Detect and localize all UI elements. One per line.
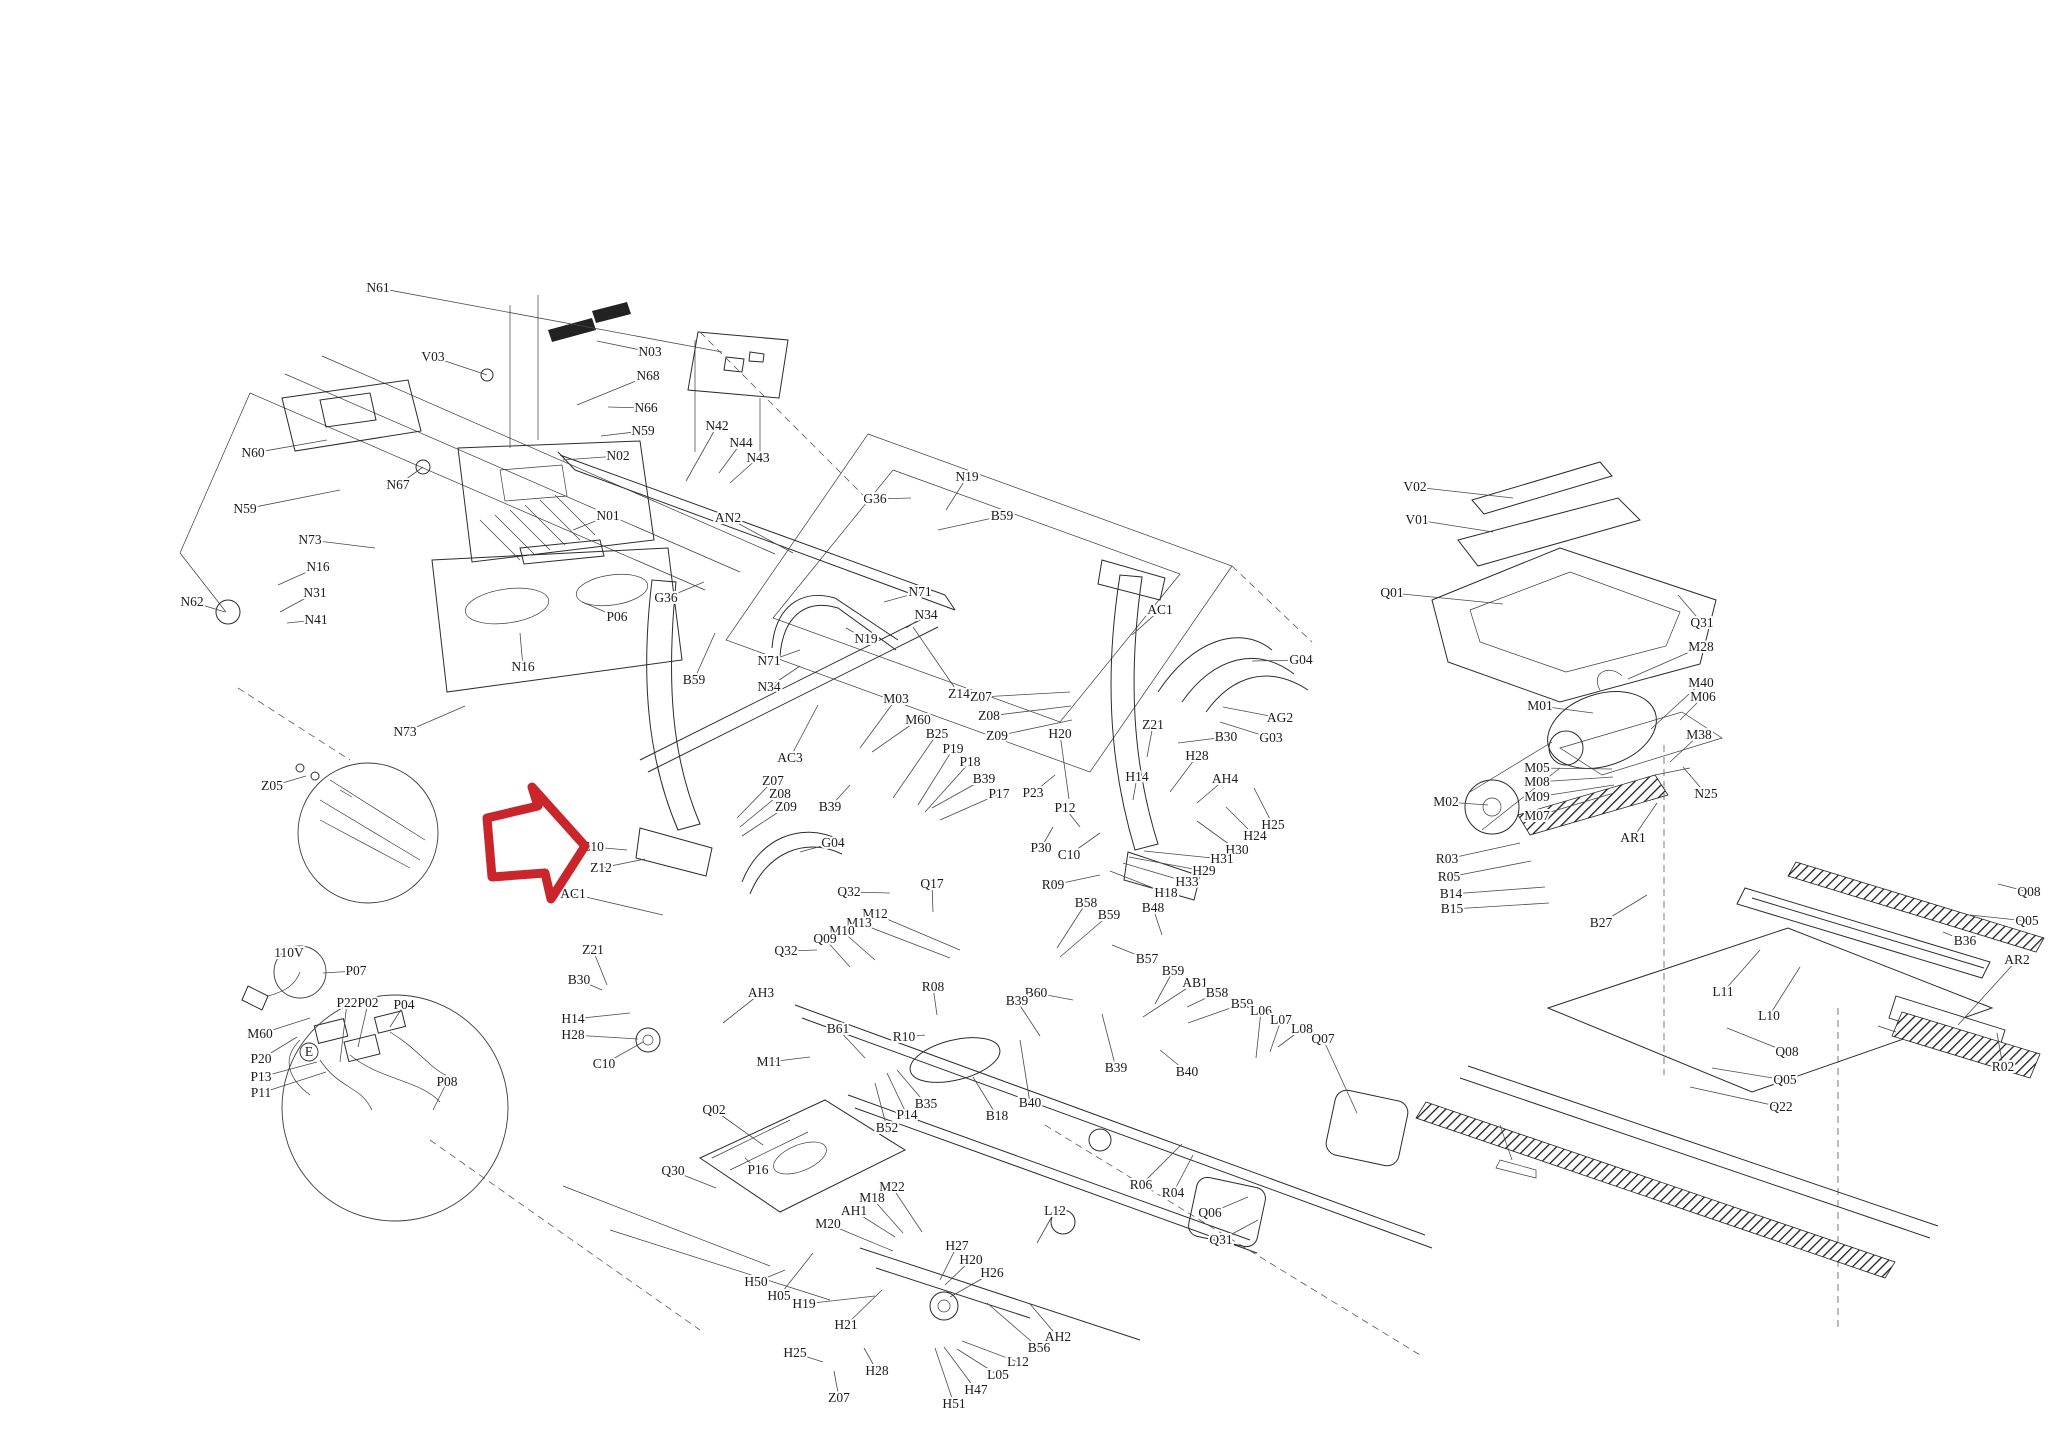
part-label-AH1: AH1 [841,1203,867,1218]
part-label-M28: M28 [1688,639,1714,654]
part-label-H25: H25 [783,1345,806,1360]
part-label-N71: N71 [908,584,931,599]
part-label-N73: N73 [298,532,321,547]
part-label-R03: R03 [1436,851,1459,866]
part-label-H28: H28 [1185,748,1208,763]
part-label-Q31: Q31 [1209,1232,1232,1247]
part-label-Z21: Z21 [1142,717,1164,732]
part-label-B52: B52 [876,1120,899,1135]
part-label-Z14: Z14 [948,686,970,701]
part-label-B18: B18 [986,1108,1009,1123]
part-label-M03: M03 [883,691,909,706]
part-label-M05: M05 [1524,760,1550,775]
part-label-B59: B59 [1162,963,1185,978]
part-label-H28: H28 [561,1027,584,1042]
part-label-N60: N60 [241,445,264,460]
part-label-L11: L11 [1712,984,1733,999]
part-label-Z12: Z12 [590,860,612,875]
part-label-H20: H20 [1048,726,1071,741]
part-label-Q01: Q01 [1380,585,1403,600]
part-label-M40: M40 [1688,675,1714,690]
part-label-B30: B30 [1215,729,1238,744]
part-label-H51: H51 [942,1396,965,1411]
part-label-Q06: Q06 [1198,1205,1221,1220]
part-label-P07: P07 [345,963,366,978]
part-label-Z08: Z08 [978,708,1000,723]
part-label-B39: B39 [819,799,842,814]
part-label-H21: H21 [834,1317,857,1332]
part-label-P04: P04 [393,997,414,1012]
part-label-M38: M38 [1686,727,1712,742]
part-label-M01: M01 [1527,698,1553,713]
part-label-B61: B61 [827,1021,850,1036]
part-label-B36: B36 [1954,933,1977,948]
part-label-P06: P06 [606,609,627,624]
part-label-N71: N71 [757,653,780,668]
part-label-G04: G04 [1289,652,1312,667]
part-label-AR1: AR1 [1620,830,1646,845]
part-label-Z09: Z09 [986,728,1008,743]
part-label-AN2: AN2 [715,510,741,525]
part-label-N19: N19 [955,469,978,484]
part-label-N59: N59 [631,423,654,438]
part-label-AH4: AH4 [1212,771,1238,786]
part-label-P12: P12 [1054,800,1075,815]
part-label-B59: B59 [683,672,706,687]
part-label-P18: P18 [959,754,980,769]
part-label-Z09: Z09 [775,799,797,814]
part-label-M20: M20 [815,1216,841,1231]
part-label-Q17: Q17 [920,876,943,891]
part-label-AC3: AC3 [777,750,803,765]
part-label-R06: R06 [1130,1177,1153,1192]
part-label-R08: R08 [922,979,945,994]
part-label-B39: B39 [973,771,996,786]
part-label-R02: R02 [1992,1059,2015,1074]
part-label-L08: L08 [1291,1021,1313,1036]
part-label-M08: M08 [1524,774,1550,789]
part-label-C10: C10 [593,1056,616,1071]
part-label-B15: B15 [1441,901,1464,916]
part-label-Q05: Q05 [1773,1072,1796,1087]
part-label-Z07: Z07 [828,1390,850,1405]
part-label-Q07: Q07 [1311,1031,1334,1046]
callout-circles: E [274,763,508,1221]
leader-lines [192,288,2029,1404]
part-label-Q05: Q05 [2015,913,2038,928]
part-label-P14: P14 [896,1107,917,1122]
part-label-110V: 110V [274,945,304,960]
part-label-AG2: AG2 [1267,710,1293,725]
part-label-B40: B40 [1019,1095,1042,1110]
part-label-P30: P30 [1030,840,1051,855]
part-label-N34: N34 [757,679,780,694]
part-label-B39: B39 [1105,1060,1128,1075]
part-label-G04: G04 [821,835,844,850]
part-label-N16: N16 [306,559,329,574]
part-label-B27: B27 [1590,915,1613,930]
part-label-N31: N31 [303,585,326,600]
base-frame-art [430,1005,1432,1355]
part-label-P23: P23 [1022,785,1043,800]
part-label-H19: H19 [792,1296,815,1311]
part-label-R09: R09 [1042,877,1065,892]
console-assembly-art [180,295,788,692]
part-label-N42: N42 [705,418,728,433]
red-arrow-pointing-at-Z10 [487,787,585,899]
part-label-H18: H18 [1154,885,1177,900]
handlebar-frame-art [558,332,1312,1052]
part-label-R10: R10 [893,1029,916,1044]
part-label-Q30: Q30 [661,1163,684,1178]
part-label-M11: M11 [756,1054,781,1069]
part-label-AC1: AC1 [1147,602,1173,617]
part-label-H14: H14 [561,1011,584,1026]
part-label-Z05: Z05 [261,778,283,793]
part-label-H28: H28 [865,1363,888,1378]
part-label-L12: L12 [1007,1354,1029,1369]
part-label-N43: N43 [746,450,769,465]
part-label-N61: N61 [366,280,389,295]
part-label-H24: H24 [1243,828,1266,843]
part-label-B48: B48 [1142,900,1165,915]
part-label-B14: B14 [1440,886,1463,901]
part-label-N19: N19 [854,631,877,646]
part-label-M60: M60 [905,712,931,727]
motor-and-deck-art [1416,462,2044,1332]
part-label-AC1: AC1 [560,886,586,901]
part-label-B59: B59 [1098,907,1121,922]
part-label-N03: N03 [638,344,661,359]
part-label-N02: N02 [606,448,629,463]
part-label-P02: P02 [357,995,378,1010]
part-label-M02: M02 [1433,794,1459,809]
part-label-B58: B58 [1206,985,1229,1000]
part-label-Z21: Z21 [582,942,604,957]
part-label-B30: B30 [568,972,591,987]
part-label-P08: P08 [436,1074,457,1089]
part-label-N16: N16 [511,659,534,674]
part-label-H14: H14 [1125,769,1148,784]
part-label-R05: R05 [1438,869,1461,884]
part-label-G03: G03 [1259,730,1282,745]
part-label-AH3: AH3 [748,985,774,1000]
part-label-P16: P16 [747,1162,768,1177]
parts-diagram-canvas: E N61V03N03N68N66N59N02N42N44N43N01AN2G3… [0,0,2048,1448]
part-label-V02: V02 [1403,479,1426,494]
part-label-B59: B59 [991,508,1014,523]
part-label-N59: N59 [233,501,256,516]
part-label-V03: V03 [421,349,444,364]
part-label-L10: L10 [1758,1008,1780,1023]
part-label-P17: P17 [988,786,1009,801]
part-label-N62: N62 [180,594,203,609]
part-label-N25: N25 [1694,786,1717,801]
part-label-H20: H20 [959,1252,982,1267]
part-label-M06: M06 [1690,689,1716,704]
part-label-N44: N44 [729,435,752,450]
part-label-N73: N73 [393,724,416,739]
part-label-N67: N67 [386,477,409,492]
part-label-B39: B39 [1006,993,1029,1008]
part-label-M07: M07 [1524,808,1550,823]
red-arrow-layer [487,787,585,899]
part-label-N68: N68 [636,368,659,383]
part-label-Q22: Q22 [1769,1099,1792,1114]
part-label-V01: V01 [1405,512,1428,527]
part-label-G36: G36 [654,590,677,605]
part-label-P20: P20 [250,1051,271,1066]
part-label-M09: M09 [1524,789,1550,804]
part-label-P11: P11 [251,1085,272,1100]
part-label-B35: B35 [915,1096,938,1111]
part-label-P13: P13 [250,1069,271,1084]
part-label-AB1: AB1 [1182,975,1208,990]
circled-letter: E [305,1044,313,1059]
part-label-R04: R04 [1162,1185,1185,1200]
part-label-H27: H27 [945,1238,968,1253]
part-label-B25: B25 [926,726,949,741]
part-label-Z07: Z07 [970,689,992,704]
part-label-Q02: Q02 [702,1102,725,1117]
part-label-N66: N66 [634,400,657,415]
part-label-C10: C10 [1058,847,1081,862]
part-label-H26: H26 [980,1265,1003,1280]
part-label-H50: H50 [744,1274,767,1289]
part-label-AR2: AR2 [2004,952,2030,967]
part-label-L07: L07 [1270,1012,1292,1027]
part-label-L05: L05 [987,1367,1009,1382]
part-label-H05: H05 [767,1288,790,1303]
part-label-Q32: Q32 [774,943,797,958]
part-label-B56: B56 [1028,1340,1051,1355]
part-label-Q08: Q08 [2017,884,2040,899]
part-label-B58: B58 [1075,895,1098,910]
part-label-Q32: Q32 [837,884,860,899]
part-label-M60: M60 [247,1026,273,1041]
part-label-Q08: Q08 [1775,1044,1798,1059]
part-label-Q09: Q09 [813,931,836,946]
part-label-B40: B40 [1176,1064,1199,1079]
part-label-H33: H33 [1175,874,1198,889]
part-label-P22: P22 [336,995,357,1010]
part-label-Q31: Q31 [1690,615,1713,630]
part-label-L12: L12 [1044,1203,1066,1218]
part-label-H47: H47 [964,1382,987,1397]
part-label-G36: G36 [863,491,886,506]
part-label-L06: L06 [1250,1003,1272,1018]
part-label-N41: N41 [304,612,327,627]
part-label-N34: N34 [914,607,937,622]
part-label-B57: B57 [1136,951,1159,966]
part-label-N01: N01 [596,508,619,523]
